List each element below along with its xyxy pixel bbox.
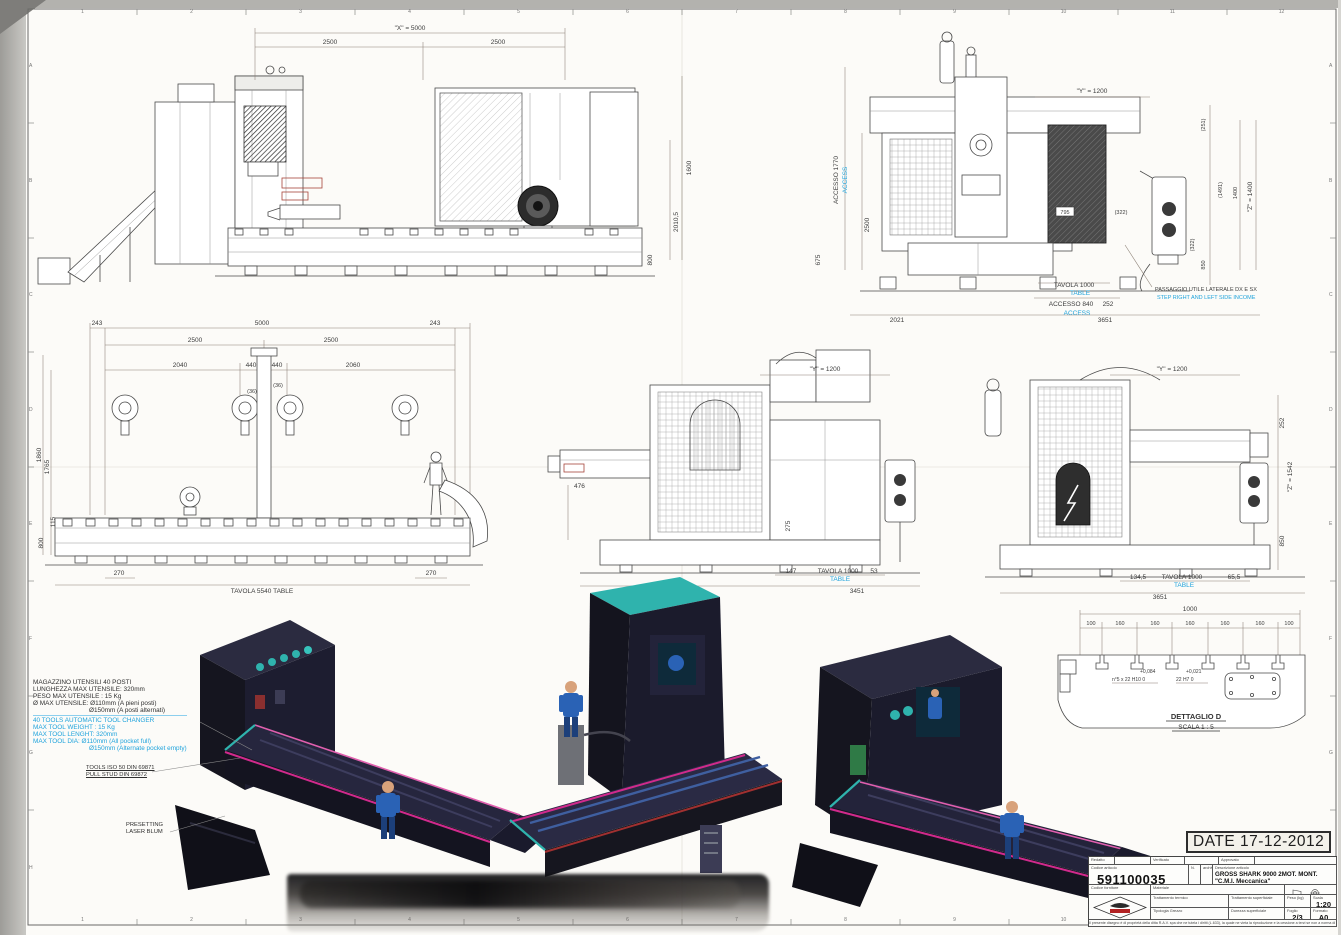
machine-bed xyxy=(215,228,655,276)
tb-tratt-sup-cell: Trattamento superficiale xyxy=(1229,895,1285,908)
tb-fornitore-cell: Codice fornitore xyxy=(1089,885,1151,895)
dim-label: 3651 xyxy=(1098,317,1113,324)
tb-label: Tipologia Grezzo xyxy=(1151,908,1228,913)
note-english: STEP RIGHT AND LEFT SIDE INCOME xyxy=(1157,295,1256,301)
dim-label: TAVOLA 1000 xyxy=(1054,282,1095,289)
machine-render-2 xyxy=(510,577,782,877)
dim-label: 2500 xyxy=(324,337,339,344)
dim-label: 2010,5 xyxy=(673,212,680,232)
note-line: LASER BLUM xyxy=(126,829,163,836)
dim-label: 275 xyxy=(785,520,792,531)
spindle-unit xyxy=(392,395,418,435)
note-line: MAX TOOL LENGHT: 320mm xyxy=(33,731,187,738)
machine-bed xyxy=(580,540,920,573)
view-detail-d: 1000 100 160 160 160 160 160 100 +0,084 … xyxy=(1040,600,1340,745)
dim-label: 160 xyxy=(1115,621,1124,627)
dim-label: (36) xyxy=(273,383,283,389)
note-line: MAGAZZINO UTENSILI 40 POSTI xyxy=(33,679,165,686)
note-line: MAX TOOL DIA: Ø110mm (All pocket full) xyxy=(33,738,187,745)
view-side-center: "Y" = 1200 476 275 147 TAVOLA 1000 TABLE… xyxy=(540,330,970,600)
dim-label: 100 xyxy=(1086,621,1095,627)
zone-number: 1 xyxy=(28,9,137,18)
tb-verificato-name xyxy=(1185,857,1219,865)
side-access-note: PASSAGGIO UTILE LATERALE DX E SX STEP RI… xyxy=(1125,245,1257,301)
tolerance-sup: +0,021 xyxy=(1186,669,1202,675)
dim-label: 5000 xyxy=(255,320,270,327)
dim-label: ACCESSO 840 xyxy=(1049,301,1094,308)
tb-label: Codice fornitore xyxy=(1089,885,1150,890)
tb-tipologia-cell: Tipologia Grezzo xyxy=(1151,908,1229,920)
tb-approvato-name xyxy=(1255,857,1337,865)
note-line: LUNGHEZZA MAX UTENSILE: 320mm xyxy=(33,686,165,693)
tb-label: Durezza superficiale xyxy=(1229,908,1284,913)
zone-number: 9 xyxy=(900,917,1009,926)
dim-label: 252 xyxy=(1103,301,1114,308)
view-side-right: "Y" = 1200 252 "Z" = 1542 850 134,5 TAVO… xyxy=(960,335,1340,600)
date-stamp-text: DATE 17-12-2012 xyxy=(1186,831,1331,853)
note-line: Ø MAX UTENSILE: Ø110mm (A pieni posti) xyxy=(33,700,165,707)
tb-verificato: Verificato xyxy=(1151,857,1185,865)
tb-redatto: Redatto xyxy=(1089,857,1115,865)
zone-ruler-top: 123456789101112 xyxy=(28,9,1336,18)
dim-label: ACCESSO 1770 xyxy=(833,156,840,204)
dim-label: "X" = 5000 xyxy=(395,25,426,32)
tool-magazine-note-it: MAGAZZINO UTENSILI 40 POSTI LUNGHEZZA MA… xyxy=(33,679,165,714)
tb-description-cell: Descrizione articolo GROSS SHARK 9000 2M… xyxy=(1213,865,1337,885)
dim-label: 1600 xyxy=(686,160,693,175)
tb-label: Verificato xyxy=(1151,857,1184,862)
dim-label: 476 xyxy=(574,483,585,490)
dim-label: 160 xyxy=(1185,621,1194,627)
tb-materiale-cell: Materiale xyxy=(1151,885,1285,895)
machine-bed xyxy=(985,545,1305,577)
zone-number: 9 xyxy=(900,9,1009,18)
tb-archivio-cell: archivio xyxy=(1201,865,1213,885)
tb-foglio-cell: Foglio 2/3 xyxy=(1285,908,1311,920)
dim-label: "Y" = 1200 xyxy=(810,366,841,373)
scan-artifact-core xyxy=(300,880,740,908)
dim-label: 243 xyxy=(92,320,103,327)
tb-peso-cell: Peso (kg) xyxy=(1285,895,1311,908)
tool-magazine-note-en: 40 TOOLS AUTOMATIC TOOL CHANGER MAX TOOL… xyxy=(33,715,187,752)
note-line: PRESETTING xyxy=(126,822,163,829)
note-line: PULL STUD DIN 69872 xyxy=(86,772,155,779)
company-logo xyxy=(1092,896,1148,919)
dimension-lines: 1000 100 160 160 160 160 160 100 xyxy=(1080,606,1300,655)
dim-label: 850 xyxy=(1201,260,1207,269)
dim-label: "Y" = 1200 xyxy=(1077,88,1108,95)
dim-label: 850 xyxy=(1279,535,1286,546)
tb-label: Materiale xyxy=(1151,885,1284,890)
dim-label: 2500 xyxy=(188,337,203,344)
dim-label: 160 xyxy=(1220,621,1229,627)
dim-label: 147 xyxy=(786,568,797,575)
tb-label: Trattamento termico xyxy=(1151,895,1228,900)
date-stamp: DATE 17-12-2012 xyxy=(1186,831,1331,853)
dim-label: 440 xyxy=(246,362,257,369)
note-line: PESO MAX UTENSILE : 15 Kg xyxy=(33,693,165,700)
dim-label: 2060 xyxy=(346,362,361,369)
view-front-elevation: 795 (322) "Y" = 1200 ACCESSO 1770 ACCESS… xyxy=(790,25,1335,325)
disclaimer-text: Il presente disegno è di proprietà della… xyxy=(1089,920,1336,926)
spindle-unit xyxy=(232,395,258,435)
dim-label: 270 xyxy=(114,570,125,577)
dim-label: "Z" = 1400 xyxy=(1247,181,1254,212)
sheet-number: 2/3 xyxy=(1285,913,1310,920)
machine-3d-renders xyxy=(160,575,1190,915)
tb-label: Redatto xyxy=(1089,857,1114,862)
dim-label-en: TABLE xyxy=(1070,290,1091,297)
tb-label: Peso (kg) xyxy=(1285,895,1310,900)
dim-label: 2500 xyxy=(323,39,338,46)
dim-label: 2021 xyxy=(890,317,905,324)
sheet-format: A0 xyxy=(1311,913,1336,920)
dim-label: 800 xyxy=(647,254,654,265)
presetting-note: PRESETTING LASER BLUM xyxy=(126,822,163,836)
machine-bed xyxy=(45,518,483,565)
dim-label: "Y" = 1200 xyxy=(1157,366,1188,373)
dim-label: 160 xyxy=(1150,621,1159,627)
projection-symbol-icon xyxy=(1285,888,1337,895)
tb-label: archivio xyxy=(1201,865,1212,870)
zone-number: 2 xyxy=(137,9,246,18)
machine-body xyxy=(548,350,880,540)
tb-n-cell: N. xyxy=(1189,865,1201,885)
dim-label: 160 xyxy=(1255,621,1264,627)
part-number: 591100035 xyxy=(1089,870,1188,885)
note-line: MAX TOOL WEIGHT : 15 Kg xyxy=(33,724,187,731)
tb-part-number-cell: Codice articolo 591100035 xyxy=(1089,865,1189,885)
dim-label-en: ACCESS xyxy=(842,166,849,193)
dim-label: (1491) xyxy=(1218,182,1224,198)
tolerance-sup: +0,084 xyxy=(1140,669,1156,675)
zone-number: 6 xyxy=(573,9,682,18)
view-side-elevation: "X" = 5000 2500 2500 1600 2010,5 800 xyxy=(30,20,710,300)
dim-label-en: ACCESS xyxy=(1064,310,1091,317)
dim-label: "Z" = 1542 xyxy=(1287,461,1294,492)
dim-label: 65,5 xyxy=(1228,574,1241,581)
dim-label: (36) xyxy=(247,389,257,395)
tb-approvato: Approvato xyxy=(1219,857,1255,865)
machine-body: 795 (322) xyxy=(860,32,1190,291)
tb-scala-cell: Scala 1:20 xyxy=(1311,895,1337,908)
operator-pendant xyxy=(885,460,915,562)
tolerance: 22 H7 0 xyxy=(1176,677,1194,683)
dim-label: 1860 xyxy=(36,447,43,462)
chip-conveyor xyxy=(38,188,174,284)
tb-durezza-cell: Durezza superficiale xyxy=(1229,908,1285,920)
tb-label: N. xyxy=(1189,865,1200,870)
detail-title-text: DETTAGLIO D xyxy=(1171,712,1222,721)
scale-value: 1:20 xyxy=(1311,900,1336,908)
zone-number: 1 xyxy=(28,917,137,926)
note-line: TOOLS ISO 50 DIN 69871 xyxy=(86,765,155,772)
note-italian: PASSAGGIO UTILE LATERALE DX E SX xyxy=(1155,287,1257,293)
zone-number: 7 xyxy=(682,9,791,18)
dim-label: 1765 xyxy=(44,459,51,474)
zone-number: 11 xyxy=(1118,9,1227,18)
dim-label: 795 xyxy=(1060,210,1069,216)
angle-head-unit xyxy=(180,487,200,515)
tb-projection-cell xyxy=(1285,885,1337,895)
title-block: Redatto Verificato Approvato Codice arti… xyxy=(1088,856,1337,927)
spindle-unit xyxy=(277,395,303,435)
tolerance: n°5 x 22 H10 0 xyxy=(1112,677,1145,683)
tb-label: Approvato xyxy=(1219,857,1254,862)
zone-number: 4 xyxy=(355,9,464,18)
dim-label: 2040 xyxy=(173,362,188,369)
zone-number: 5 xyxy=(464,9,573,18)
zone-number: 2 xyxy=(137,917,246,926)
tb-logo-cell xyxy=(1089,895,1151,920)
dim-label: 2500 xyxy=(491,39,506,46)
dim-label: 1400 xyxy=(1233,187,1239,199)
tb-disclaimer-cell: Il presente disegno è di proprietà della… xyxy=(1089,920,1337,927)
dim-label: 675 xyxy=(815,254,822,265)
tb-formato-cell: Formato A0 xyxy=(1311,908,1337,920)
zone-number: 10 xyxy=(1009,9,1118,18)
dim-label: 100 xyxy=(1284,621,1293,627)
machine-body xyxy=(985,368,1268,546)
zone-number: 8 xyxy=(791,9,900,18)
dim-label: 243 xyxy=(430,320,441,327)
dim-label: (251) xyxy=(1201,118,1207,131)
tools-iso-note: TOOLS ISO 50 DIN 69871 PULL STUD DIN 698… xyxy=(86,765,155,779)
dim-label: TAVOLA 1000 xyxy=(818,568,859,575)
spindle-unit xyxy=(112,395,138,435)
dim-label: 252 xyxy=(1279,417,1286,428)
note-line: Ø150mm (A posti alternati) xyxy=(33,707,165,714)
zone-number: 12 xyxy=(1227,9,1336,18)
tb-tratt-termico-cell: Trattamento termico xyxy=(1151,895,1229,908)
dim-label: 2500 xyxy=(864,217,871,232)
tb-label: Trattamento superficiale xyxy=(1229,895,1284,900)
column xyxy=(251,348,277,518)
dim-label: 800 xyxy=(38,537,45,548)
operator-pendant xyxy=(1140,171,1186,291)
drawing-title: GROSS SHARK 9000 2MOT. MONT. "C.M.I. Mec… xyxy=(1213,870,1336,885)
view-bed-front: 243 5000 243 2500 2500 2040 440 440 2060… xyxy=(35,315,535,605)
drawing-sheet: 123456789101112 123456789101112 ABCDEFGH… xyxy=(0,0,1341,935)
zone-number: 8 xyxy=(791,917,900,926)
zone-number: 3 xyxy=(246,9,355,18)
workpiece-fixture xyxy=(435,88,638,236)
dim-label: (322) xyxy=(1115,210,1128,216)
dim-label: 440 xyxy=(272,362,283,369)
dim-label: (322) xyxy=(1190,238,1196,251)
tb-redatto-name xyxy=(1115,857,1151,865)
note-line: Ø150mm (Alternate pocket empty) xyxy=(33,745,187,752)
dim-label: 1000 xyxy=(1183,606,1198,613)
dim-label: 53 xyxy=(870,568,878,575)
note-line: 40 TOOLS AUTOMATIC TOOL CHANGER xyxy=(33,717,187,724)
detail-scale-text: SCALA 1 : 5 xyxy=(1178,724,1214,731)
